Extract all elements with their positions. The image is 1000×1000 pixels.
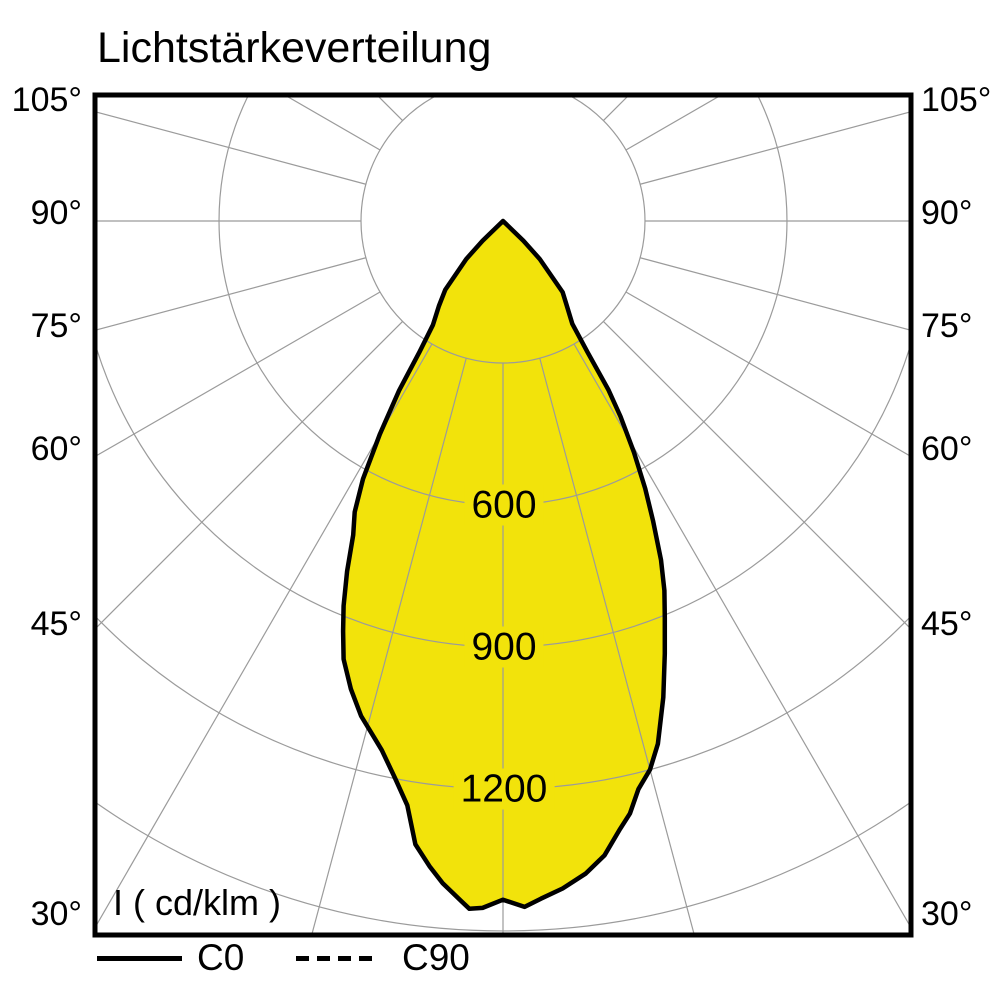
ring-value-label-1200: 1200 bbox=[454, 768, 555, 809]
legend-solid-line-sample bbox=[97, 956, 182, 961]
unit-axis-label: I ( cd/klm ) bbox=[113, 882, 281, 924]
legend-dashed-line-sample bbox=[296, 956, 374, 961]
legend: C0 C90 bbox=[0, 940, 1000, 988]
ring-value-label-600: 600 bbox=[464, 484, 543, 525]
angle-tick-left-105: 105° bbox=[12, 83, 82, 117]
angle-tick-right-60: 60° bbox=[921, 432, 972, 466]
grid-radial-240 bbox=[0, 0, 380, 150]
grid-radial-75 bbox=[640, 258, 1000, 442]
angle-tick-left-45: 45° bbox=[31, 607, 82, 641]
angle-tick-right-90: 90° bbox=[921, 196, 972, 230]
angle-tick-right-105: 105° bbox=[921, 83, 991, 117]
grid-radial-300 bbox=[0, 292, 380, 647]
grid-radial-165 bbox=[540, 0, 724, 84]
grid-radial-315 bbox=[0, 321, 403, 823]
legend-label-c90: C90 bbox=[402, 937, 470, 979]
angle-tick-right-30: 30° bbox=[921, 897, 972, 931]
grid-radial-285 bbox=[0, 258, 366, 442]
luminous-intensity-diagram: Lichtstärkeverteilung 105°105°90°90°75°7… bbox=[0, 0, 1000, 1000]
grid-radial-150 bbox=[574, 0, 929, 98]
angle-tick-left-60: 60° bbox=[31, 432, 82, 466]
angle-tick-right-75: 75° bbox=[921, 309, 972, 343]
grid-radial-210 bbox=[77, 0, 432, 98]
grid-radial-120 bbox=[626, 0, 1000, 150]
ring-value-label-900: 900 bbox=[464, 626, 543, 667]
angle-tick-left-30: 30° bbox=[31, 897, 82, 931]
legend-label-c0: C0 bbox=[197, 937, 244, 979]
angle-tick-left-90: 90° bbox=[31, 196, 82, 230]
angle-tick-left-75: 75° bbox=[31, 309, 82, 343]
angle-tick-right-45: 45° bbox=[921, 607, 972, 641]
grid-radial-60 bbox=[626, 292, 1000, 647]
grid-radial-195 bbox=[283, 0, 467, 84]
